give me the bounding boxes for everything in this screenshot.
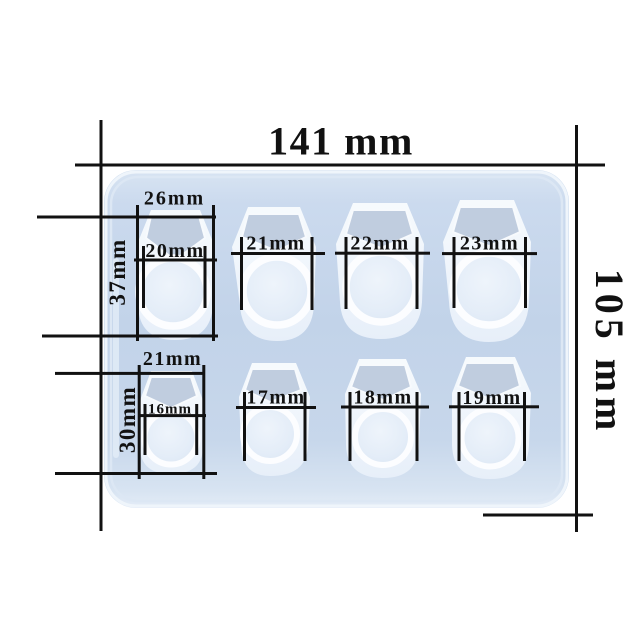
svg-text:105 mm: 105 mm [587, 269, 632, 436]
svg-text:22mm: 22mm [350, 233, 409, 255]
svg-text:18mm: 18mm [353, 387, 412, 409]
svg-text:37mm: 37mm [105, 238, 130, 305]
svg-text:21mm: 21mm [143, 348, 202, 370]
svg-text:23mm: 23mm [460, 233, 519, 255]
svg-text:21mm: 21mm [246, 233, 305, 255]
svg-text:26mm: 26mm [144, 188, 205, 210]
svg-text:30mm: 30mm [115, 386, 140, 453]
svg-text:17mm: 17mm [246, 387, 305, 409]
svg-text:141 mm: 141 mm [268, 119, 414, 164]
